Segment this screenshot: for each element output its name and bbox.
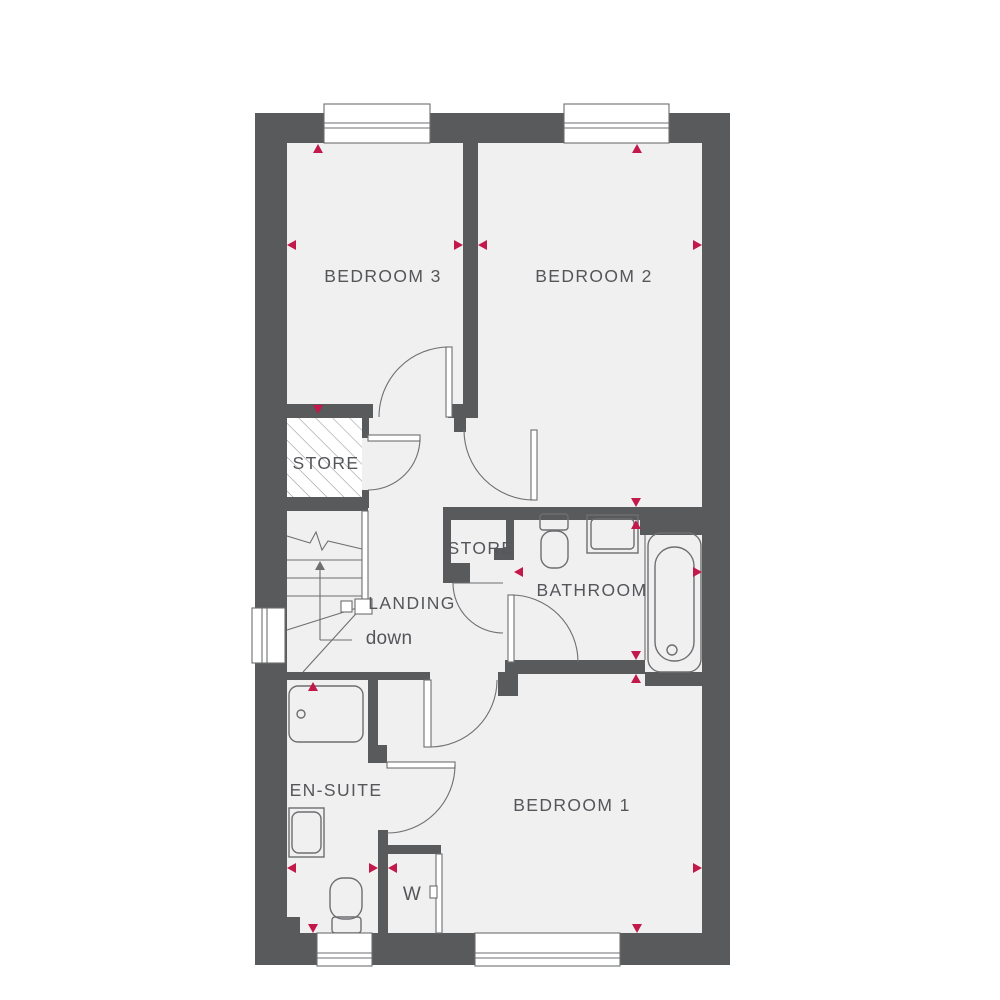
bathroom-door-leaf: [508, 595, 514, 662]
room-label-store-inner: STORE: [448, 538, 515, 558]
stairs-direction-label: down: [366, 628, 413, 649]
landing-window: [252, 608, 285, 663]
bedroom3-window: [324, 104, 430, 143]
wall-ensuite-doorstop: [368, 745, 387, 763]
room-label-wardrobe: W: [403, 884, 421, 905]
stair-banister: [362, 511, 368, 601]
bedroom3-door-leaf: [446, 347, 452, 417]
room-label-bathroom: BATHROOM: [536, 580, 647, 600]
wall-bedroom3-bottom: [287, 404, 373, 418]
wall-innerstore-left-foot: [443, 563, 470, 583]
bedroom1-door-leaf: [424, 680, 431, 747]
ensuite-window: [317, 933, 372, 966]
wardrobe-door-handle: [430, 886, 437, 898]
wall-ensuite-right-lower: [378, 830, 388, 933]
wall-ensuite-right-upper: [368, 680, 378, 745]
wall-bathniche-bottom: [645, 672, 702, 686]
room-label-landing: LANDING: [368, 593, 456, 613]
floor-plan-svg: BEDROOM 3 BEDROOM 2 STORE STORE LANDING …: [0, 0, 1000, 1000]
bedroom2-window: [564, 104, 669, 143]
wall-bathroom-bottom: [505, 660, 645, 674]
room-label-store-upper: STORE: [293, 453, 360, 473]
room-label-bedroom1: BEDROOM 1: [513, 795, 631, 815]
wall-doorstop-bedroom1: [498, 672, 518, 696]
wall-store-bottom: [287, 497, 368, 511]
store-door-leaf: [368, 435, 420, 441]
wall-bedroom3-bedroom2: [463, 143, 478, 404]
wall-bath-niche-block: [640, 507, 702, 535]
bedroom1-window: [475, 933, 620, 966]
room-label-ensuite: EN-SUITE: [290, 780, 383, 800]
room-label-bedroom3: BEDROOM 3: [324, 266, 442, 286]
wall-landing-ensuite: [287, 672, 430, 680]
floor-plan-page: BEDROOM 3 BEDROOM 2 STORE STORE LANDING …: [0, 0, 1000, 1000]
wall-wardrobe-top: [388, 845, 441, 854]
ensuite-door-leaf: [387, 762, 455, 768]
wall-ensuite-step: [287, 917, 300, 933]
stair-newel-post: [341, 601, 352, 612]
wall-doorstop-bedroom2: [454, 418, 466, 432]
room-label-bedroom2: BEDROOM 2: [535, 266, 653, 286]
bedroom2-door-leaf: [531, 430, 537, 500]
